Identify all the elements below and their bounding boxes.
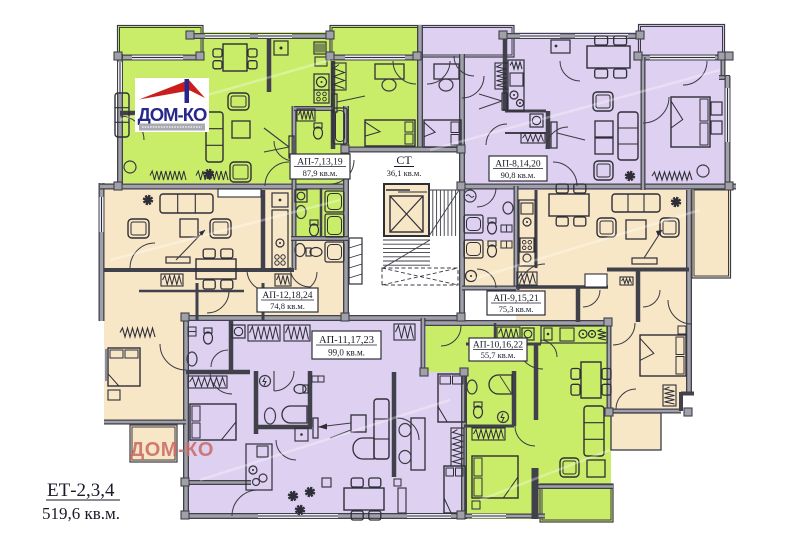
svg-text:ДОМ-КО: ДОМ-КО xyxy=(138,104,207,125)
svg-text:74,8 кв.м.: 74,8 кв.м. xyxy=(270,301,305,311)
svg-text:ДОМ-КО: ДОМ-КО xyxy=(130,439,214,461)
svg-text:АП-8,14,20: АП-8,14,20 xyxy=(495,160,541,170)
svg-text:36,1 кв.м.: 36,1 кв.м. xyxy=(387,168,422,178)
svg-text:ЕТ-2,3,4: ЕТ-2,3,4 xyxy=(47,480,115,501)
svg-text:87,9 кв.м.: 87,9 кв.м. xyxy=(303,168,338,178)
svg-text:519,6 кв.м.: 519,6 кв.м. xyxy=(42,504,120,523)
svg-text:90,8 кв.м.: 90,8 кв.м. xyxy=(501,170,536,180)
svg-text:АП-7,13,19: АП-7,13,19 xyxy=(297,158,343,168)
svg-text:АП-9,15,21: АП-9,15,21 xyxy=(493,294,539,304)
svg-text:75,3 кв.м.: 75,3 кв.м. xyxy=(499,304,534,314)
svg-text:55,7 кв.м.: 55,7 кв.м. xyxy=(481,350,516,360)
svg-text:АП-12,18,24: АП-12,18,24 xyxy=(262,291,312,301)
svg-text:СТ: СТ xyxy=(396,153,412,167)
svg-text:АП-11,17,23: АП-11,17,23 xyxy=(319,335,374,346)
svg-text:99,0 кв.м.: 99,0 кв.м. xyxy=(328,348,365,358)
